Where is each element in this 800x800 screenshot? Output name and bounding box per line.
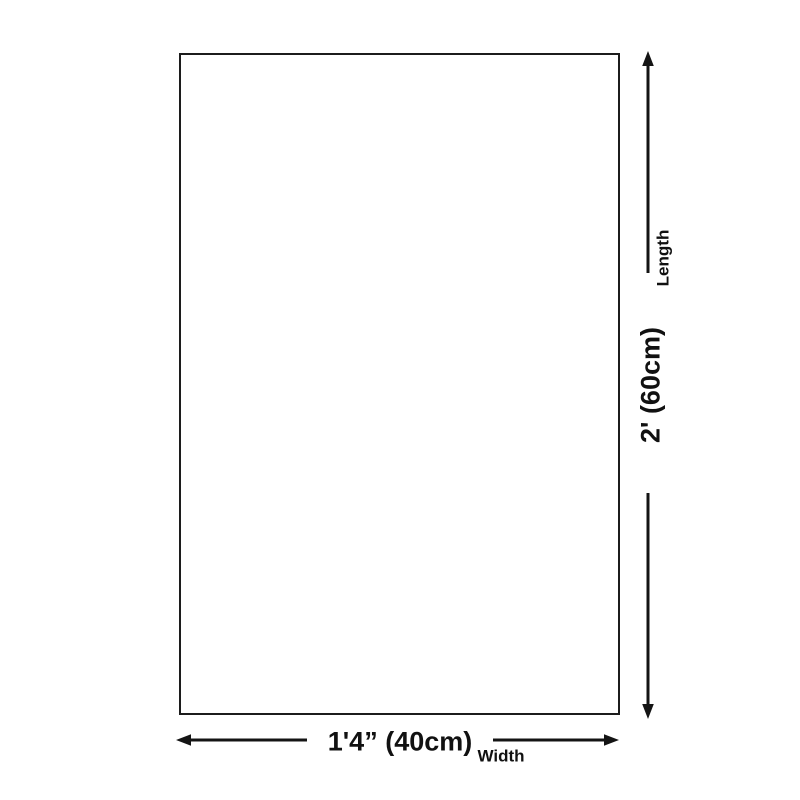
length-arrow-up-icon [642,51,654,273]
width-dimension-value: 1'4” (40cm) [328,729,473,756]
length-arrow-down-icon [642,493,654,719]
dimension-arrows [0,0,800,800]
length-axis-label: Length [655,230,672,287]
dimension-diagram: Length 2' (60cm) 1'4” (40cm) Width [0,0,800,800]
width-axis-label: Width [477,748,524,765]
length-dimension-value: 2' (60cm) [638,327,665,443]
width-arrow-right-icon [493,734,619,746]
width-arrow-left-icon [176,734,307,746]
